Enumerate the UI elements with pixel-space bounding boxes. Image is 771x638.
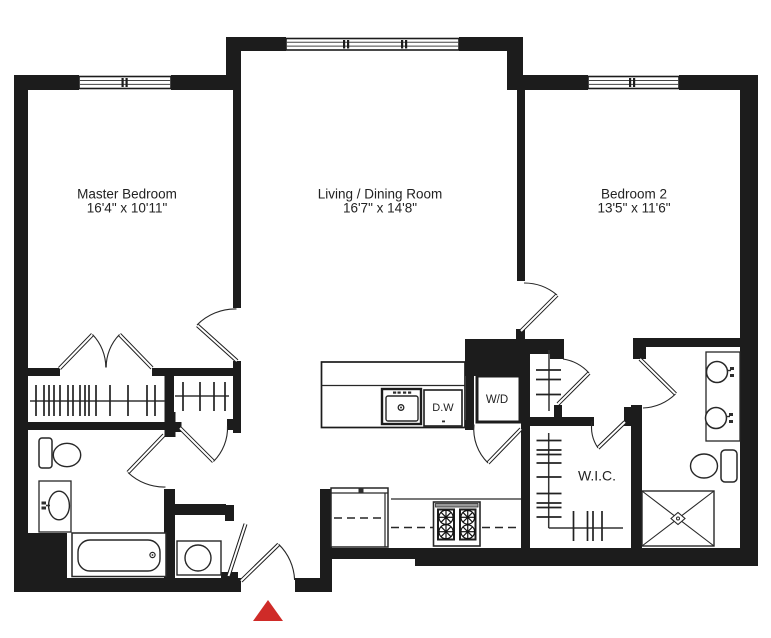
svg-text:Bedroom 2: Bedroom 2 [601, 187, 667, 202]
svg-text:W/D: W/D [486, 394, 508, 406]
svg-text:Master Bedroom: Master Bedroom [77, 187, 177, 202]
svg-text:W.I.C.: W.I.C. [578, 468, 616, 484]
svg-text:13'5" x 11'6": 13'5" x 11'6" [597, 201, 670, 216]
svg-text:Living / Dining Room: Living / Dining Room [318, 187, 443, 202]
svg-text:16'7" x 14'8": 16'7" x 14'8" [343, 201, 417, 216]
svg-text:D.W: D.W [432, 402, 454, 414]
svg-text:16'4" x 10'11": 16'4" x 10'11" [87, 201, 168, 216]
